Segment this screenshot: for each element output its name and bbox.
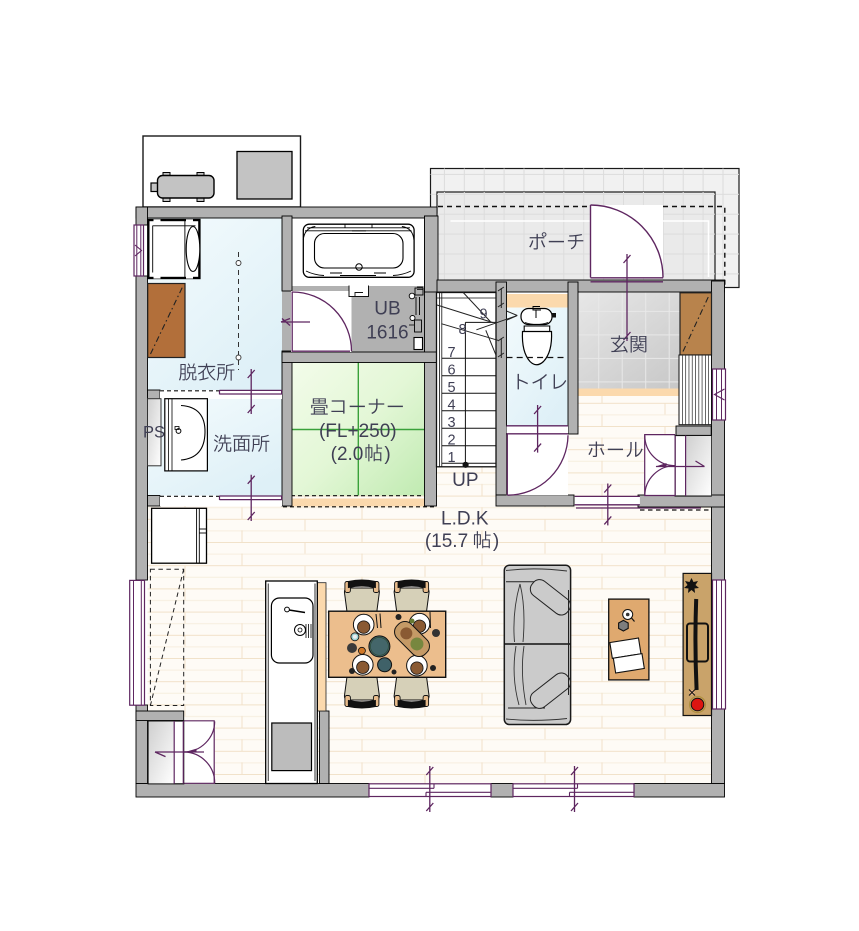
svg-text:8: 8 — [459, 322, 467, 338]
svg-text:UP: UP — [452, 470, 478, 491]
svg-text:): ) — [493, 531, 499, 552]
svg-text:): ) — [384, 444, 390, 465]
svg-text:(15.7: (15.7 — [425, 531, 468, 552]
svg-text:4: 4 — [447, 398, 455, 414]
svg-text:PS: PS — [143, 424, 165, 442]
svg-text:5: 5 — [447, 380, 455, 396]
svg-text:(FL+250): (FL+250) — [319, 421, 397, 442]
svg-text:1: 1 — [447, 450, 455, 466]
svg-text:1616: 1616 — [366, 323, 408, 344]
svg-text:(2.0: (2.0 — [331, 444, 364, 465]
svg-text:L.D.K: L.D.K — [441, 508, 489, 529]
svg-text:9: 9 — [480, 307, 488, 323]
svg-text:7: 7 — [447, 345, 455, 361]
svg-text:6: 6 — [447, 363, 455, 379]
svg-text:3: 3 — [447, 415, 455, 431]
svg-text:UB: UB — [374, 299, 400, 320]
svg-text:2: 2 — [447, 433, 455, 449]
